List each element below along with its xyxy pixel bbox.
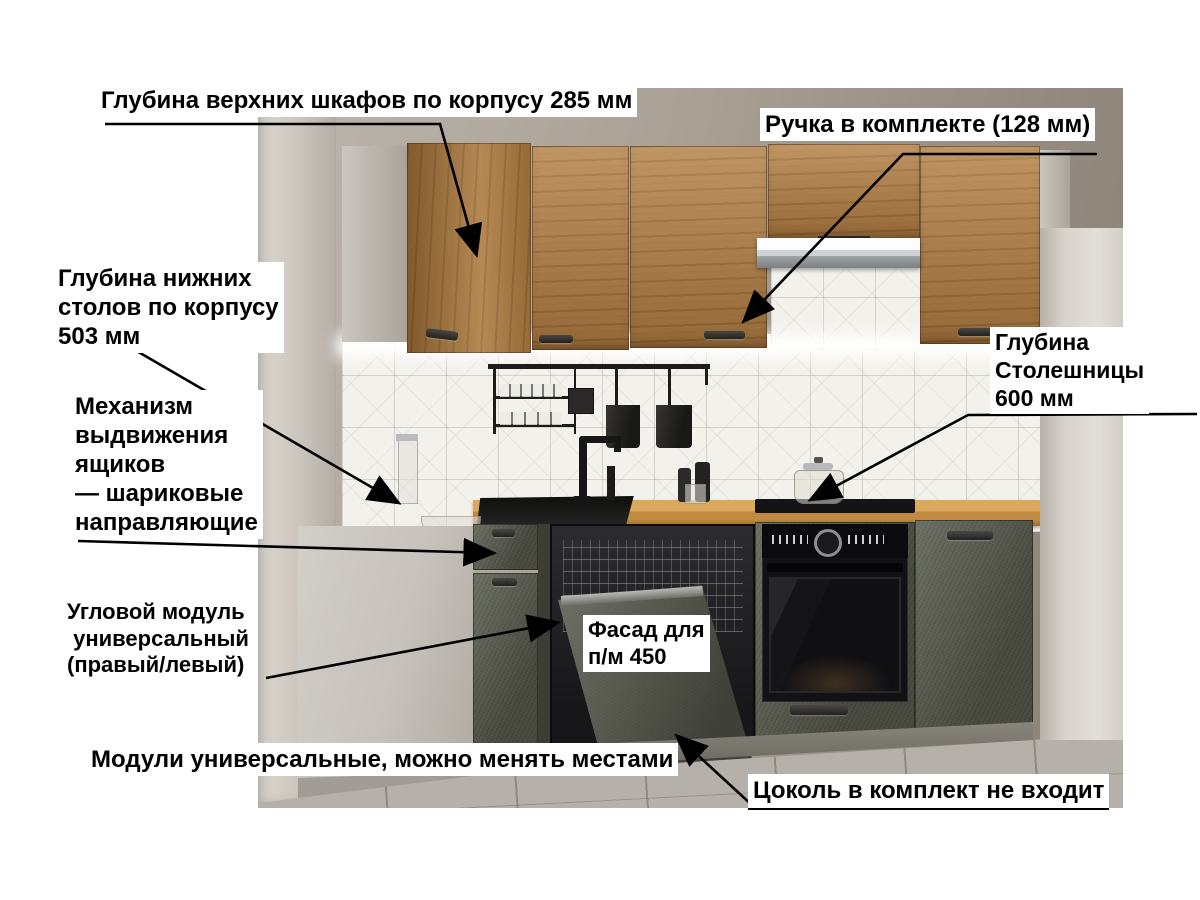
cabinet-handle	[947, 531, 993, 540]
hanging-jar	[656, 405, 692, 448]
right-base-cabinet	[915, 520, 1033, 733]
annotation-dishwasher-facade: Фасад для п/м 450	[583, 615, 710, 672]
cabinet-handle	[539, 335, 573, 343]
kitchen-faucet	[579, 438, 587, 502]
faucet-base	[573, 496, 591, 504]
upper-cabinet-door	[630, 146, 767, 348]
glass-carafe	[398, 438, 418, 504]
annotated-kitchen-image: Глубина верхних шкафов по корпусу 285 мм…	[0, 0, 1200, 900]
drawer-handle	[790, 705, 848, 715]
rail-hook	[705, 369, 708, 385]
annotation-universal-modules: Модули универсальные, можно менять места…	[86, 743, 678, 776]
annotation-drawer-mechanism: Механизм выдвижения ящиков — шариковые н…	[70, 390, 263, 539]
right-wall	[1040, 228, 1123, 740]
upper-cabinet-side-panel	[342, 146, 407, 342]
oven-door-glass	[769, 577, 901, 693]
spice-holder	[568, 388, 594, 414]
cabinet-handle	[958, 328, 994, 336]
oven-display	[772, 535, 808, 544]
annotation-upper-cabinet-depth: Глубина верхних шкафов по корпусу 285 мм	[96, 84, 637, 117]
rail-hook	[668, 369, 671, 407]
annotation-countertop-depth: Глубина Столешницы 600 мм	[990, 327, 1149, 414]
kettle	[794, 470, 844, 504]
upper-cabinet-above-hood	[768, 144, 920, 240]
corner-cabinet-door	[473, 573, 538, 753]
glasses-row	[500, 412, 562, 425]
rail-hook	[615, 369, 618, 407]
kitchen-photo	[258, 88, 1123, 808]
faucet-nozzle	[614, 436, 621, 452]
glass-cup	[685, 484, 706, 504]
kettle-lid	[803, 463, 833, 470]
cabinet-handle	[704, 331, 745, 339]
soap-dispenser	[607, 466, 615, 500]
glasses-row	[500, 384, 562, 397]
drawer-handle	[492, 529, 515, 537]
hanging-rail	[488, 364, 710, 369]
right-upper-cabinet-door	[920, 146, 1040, 344]
oven-display	[848, 535, 884, 544]
annotation-plinth-note: Цоколь в комплект не входит	[748, 774, 1109, 810]
oven-knob	[814, 529, 842, 557]
annotation-handle-included: Ручка в комплекте (128 мм)	[760, 108, 1095, 141]
carafe-lid	[396, 434, 418, 441]
range-hood	[757, 238, 920, 268]
cabinet-handle	[492, 578, 517, 586]
kettle-knob	[814, 457, 823, 463]
annotation-base-cabinet-depth: Глубина нижних столов по корпусу 503 мм	[53, 262, 284, 353]
corner-upper-cabinet-door	[407, 143, 531, 353]
upper-cabinet-door	[532, 146, 629, 350]
sink	[477, 496, 637, 526]
oven-handle	[767, 563, 903, 572]
annotation-corner-module: Угловой модуль универсальный (правый/лев…	[62, 597, 254, 681]
